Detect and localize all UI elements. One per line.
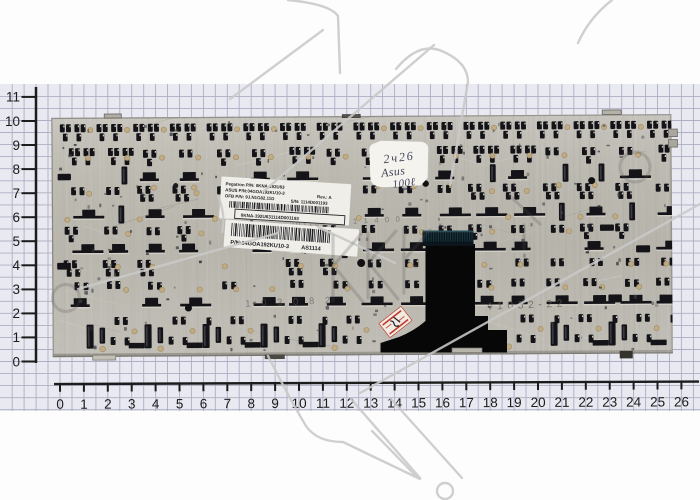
svg-text:Rev.: A: Rev.: A [317,194,333,200]
svg-text:4: 4 [152,396,160,411]
svg-text:3: 3 [128,397,136,412]
svg-text:5: 5 [12,234,20,249]
svg-text:1: 1 [80,397,88,412]
svg-text:10: 10 [5,114,20,129]
svg-text:3: 3 [12,282,20,297]
svg-text:26: 26 [674,394,689,409]
svg-text:9: 9 [12,138,20,153]
svg-text:5: 5 [176,396,184,411]
svg-text:11: 11 [6,90,20,105]
svg-text:11: 11 [316,396,330,411]
svg-text:0: 0 [56,397,64,412]
svg-text:13: 13 [363,396,378,411]
svg-text:6: 6 [200,396,208,411]
svg-text:16: 16 [435,395,450,410]
svg-text:25: 25 [650,394,665,409]
svg-text:18: 18 [483,395,498,410]
svg-text:1: 1 [12,330,20,345]
svg-text:9: 9 [271,396,279,411]
svg-text:22: 22 [578,395,593,410]
svg-text:2: 2 [12,306,20,321]
svg-text:8: 8 [247,396,255,411]
svg-text:23: 23 [602,395,617,410]
svg-text:20: 20 [531,395,546,410]
svg-text:24: 24 [626,395,642,410]
svg-text:12: 12 [339,396,354,411]
svg-text:4: 4 [12,258,20,273]
svg-text:8: 8 [12,162,20,177]
svg-text:0: 0 [12,354,20,369]
svg-text:2: 2 [104,397,112,412]
svg-text:19: 19 [507,395,522,410]
svg-text:15: 15 [411,395,426,410]
svg-text:21: 21 [554,395,569,410]
svg-text:7: 7 [224,396,232,411]
svg-text:7: 7 [12,186,20,201]
svg-text:6: 6 [12,210,20,225]
svg-text:17: 17 [459,395,474,410]
